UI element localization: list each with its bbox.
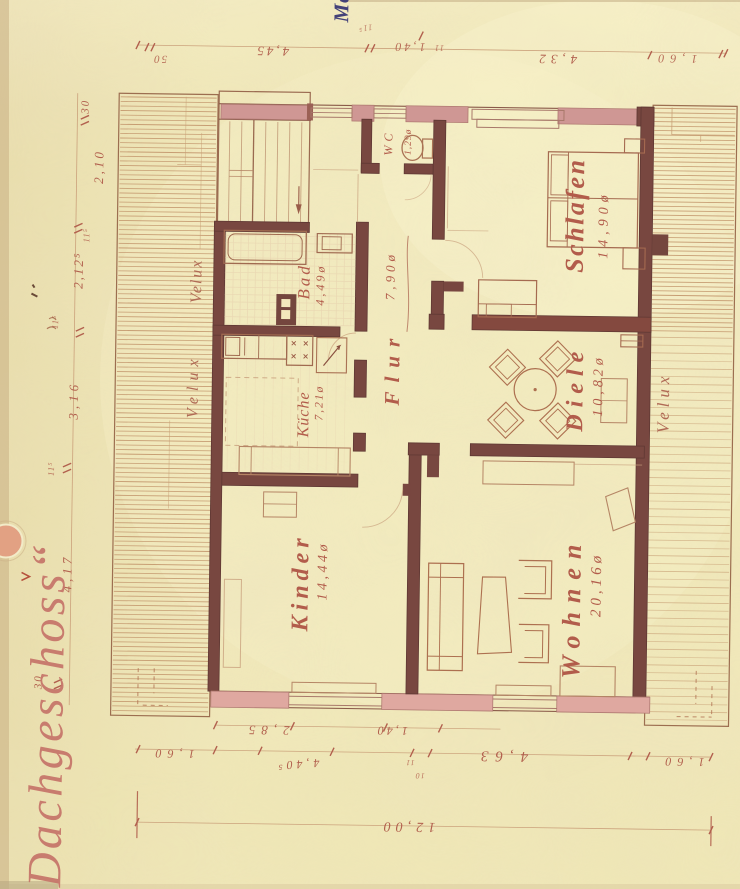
svg-text:Diele: Diele: [562, 345, 589, 433]
svg-text:3,16: 3,16: [66, 381, 82, 421]
svg-text:11⁵: 11⁵: [81, 228, 91, 243]
svg-text:Velux: Velux: [184, 353, 202, 418]
svg-text:Velux: Velux: [653, 371, 673, 433]
svg-text:2,10: 2,10: [91, 149, 106, 184]
svg-text:Schlafen: Schlafen: [560, 157, 591, 273]
svg-text:10: 10: [415, 771, 425, 780]
svg-text:1,29ø: 1,29ø: [404, 129, 414, 156]
svg-text:2,85: 2,85: [243, 723, 290, 739]
svg-text:1,60: 1,60: [652, 51, 697, 66]
svg-text:7,21ø: 7,21ø: [313, 385, 325, 421]
svg-text:11: 11: [405, 758, 415, 767]
svg-text:10,82ø: 10,82ø: [591, 354, 607, 417]
svg-text:50: 50: [152, 53, 167, 65]
svg-text:12,00: 12,00: [379, 818, 436, 834]
svg-text:7,90ø: 7,90ø: [382, 251, 398, 300]
svg-text:11⁵: 11⁵: [46, 462, 56, 477]
svg-text:Wohnen: Wohnen: [556, 535, 587, 679]
svg-text:WC: WC: [381, 129, 395, 155]
svg-text:14,44ø: 14,44ø: [315, 541, 331, 601]
svg-text:2,12⁵: 2,12⁵: [71, 251, 87, 288]
svg-text:4,63: 4,63: [474, 747, 528, 764]
svg-text:1,60: 1,60: [659, 755, 704, 770]
svg-text:Dachgeschoss“: Dachgeschoss“: [18, 540, 76, 889]
svg-text:Küche: Küche: [295, 391, 313, 438]
svg-text:11⁵: 11⁵: [358, 22, 374, 34]
svg-text:11: 11: [434, 43, 444, 53]
svg-text:30: 30: [79, 99, 91, 115]
svg-text:4,32: 4,32: [534, 52, 577, 68]
svg-text:14,90ø: 14,90ø: [596, 190, 612, 259]
svg-text:Velux: Velux: [188, 258, 206, 303]
svg-text:20,16ø: 20,16ø: [588, 552, 605, 617]
svg-text:1,60: 1,60: [149, 747, 194, 762]
svg-text:4,49ø: 4,49ø: [313, 264, 328, 306]
svg-text:Bad: Bad: [294, 263, 314, 300]
svg-text:1,40: 1,40: [392, 40, 425, 54]
svg-text:1,40: 1,40: [375, 724, 408, 738]
svg-text:Flur: Flur: [380, 330, 405, 407]
svg-text:4,45: 4,45: [254, 44, 289, 59]
svg-text:Ma: Ma: [329, 0, 353, 24]
svg-text:Kinder: Kinder: [287, 533, 314, 632]
